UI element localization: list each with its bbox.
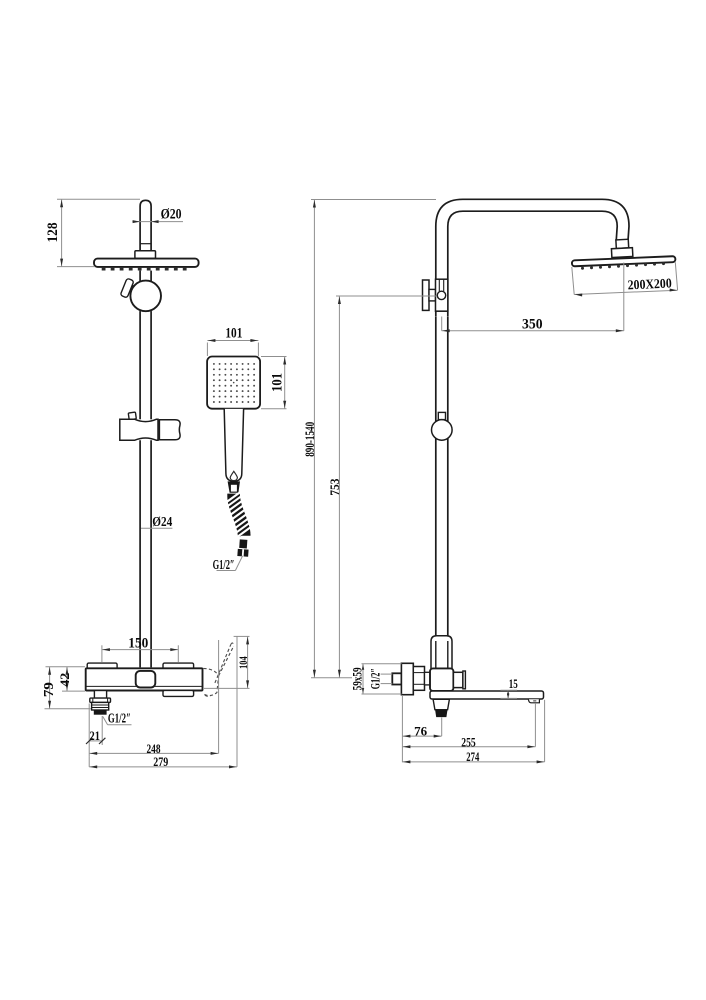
svg-text:128: 128 (45, 223, 61, 243)
svg-text:101: 101 (269, 373, 285, 392)
svg-text:76: 76 (414, 723, 428, 738)
svg-text:274: 274 (466, 749, 479, 764)
svg-text:Ø24: Ø24 (152, 515, 172, 530)
svg-text:150: 150 (128, 636, 148, 652)
svg-text:279: 279 (153, 754, 168, 769)
svg-text:79: 79 (41, 682, 56, 697)
svg-text:753: 753 (327, 478, 342, 495)
svg-text:21: 21 (89, 729, 100, 743)
svg-text:15: 15 (509, 676, 518, 691)
svg-text:890-1540: 890-1540 (302, 422, 317, 457)
svg-text:42: 42 (57, 673, 72, 687)
svg-text:G1/2″: G1/2″ (368, 668, 383, 689)
svg-text:59x59: 59x59 (351, 667, 365, 690)
svg-text:G1/2″: G1/2″ (108, 711, 131, 726)
svg-text:104: 104 (236, 656, 250, 669)
svg-text:200X200: 200X200 (627, 275, 672, 292)
svg-text:255: 255 (461, 734, 476, 749)
svg-text:G1/2″: G1/2″ (213, 557, 235, 572)
svg-text:Ø20: Ø20 (161, 206, 182, 222)
svg-text:350: 350 (522, 317, 543, 333)
svg-text:101: 101 (225, 326, 242, 342)
